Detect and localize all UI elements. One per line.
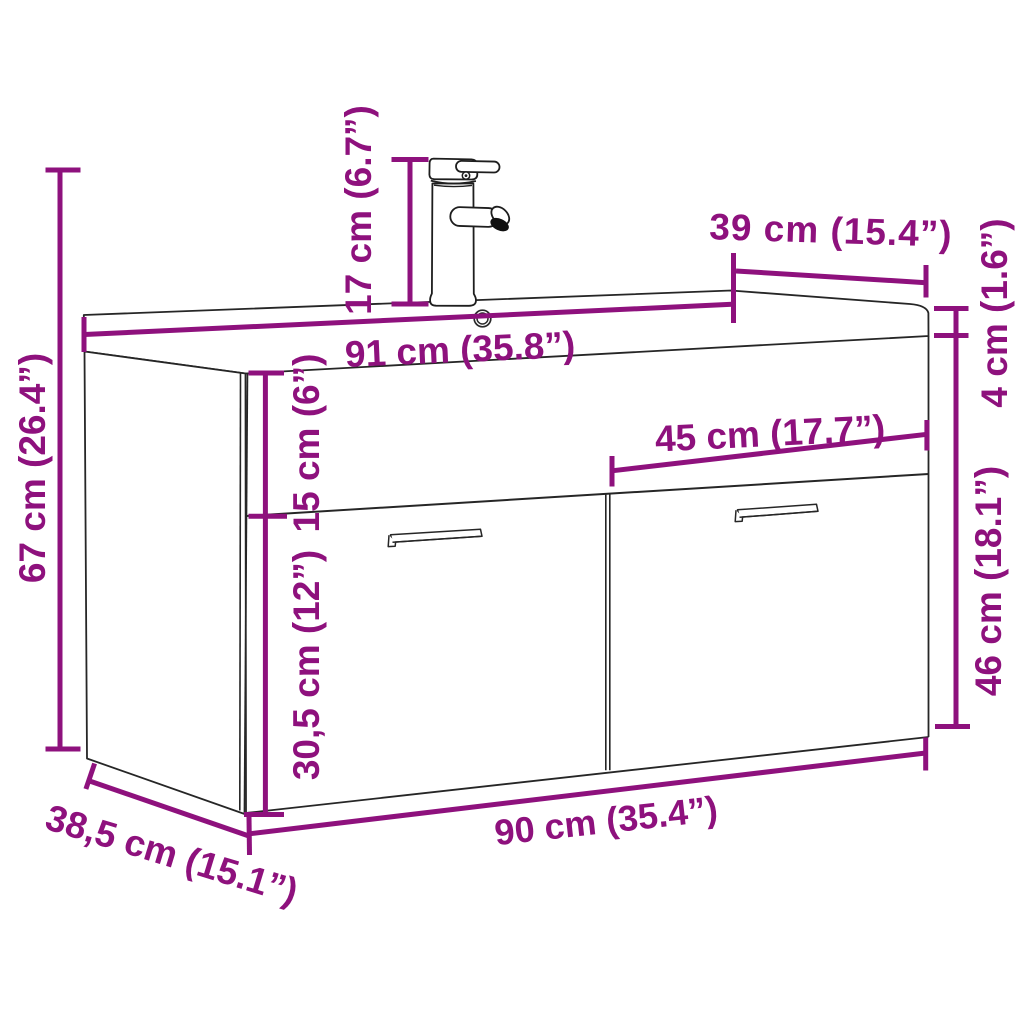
svg-text:39 cm (15.4”): 39 cm (15.4”) xyxy=(709,206,954,255)
svg-text:67 cm (26.4”): 67 cm (26.4”) xyxy=(12,353,53,583)
svg-text:46 cm (18.1”): 46 cm (18.1”) xyxy=(968,466,1009,696)
svg-text:17 cm (6.7”): 17 cm (6.7”) xyxy=(338,105,379,315)
svg-text:4 cm (1.6”): 4 cm (1.6”) xyxy=(974,218,1015,407)
svg-text:15 cm (6”): 15 cm (6”) xyxy=(286,354,327,533)
svg-text:30,5 cm (12”): 30,5 cm (12”) xyxy=(286,550,327,780)
